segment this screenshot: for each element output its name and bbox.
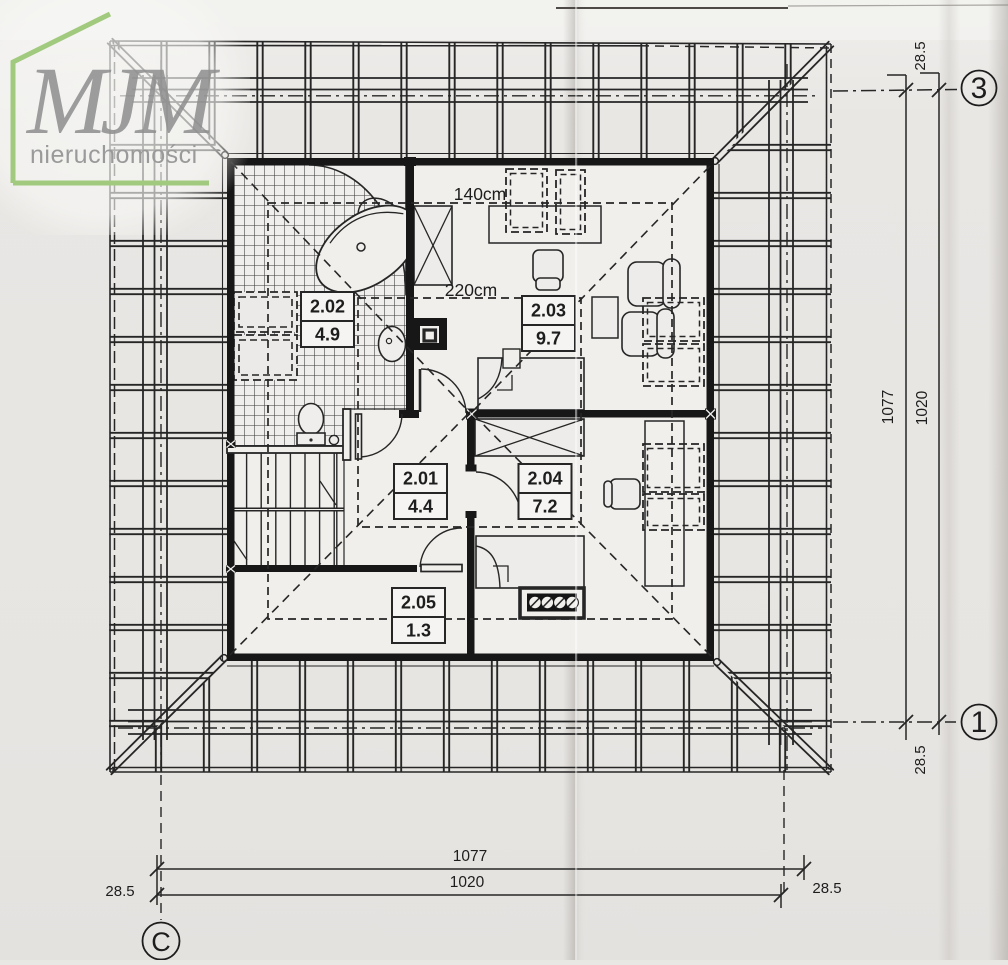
svg-text:9.7: 9.7: [536, 329, 561, 349]
svg-text:4.9: 4.9: [315, 325, 340, 345]
svg-text:7.2: 7.2: [532, 497, 557, 517]
svg-text:1077: 1077: [880, 390, 897, 424]
svg-text:1: 1: [971, 706, 988, 739]
svg-text:2.02: 2.02: [310, 297, 345, 317]
svg-text:28.5: 28.5: [812, 880, 841, 897]
svg-text:140cm: 140cm: [454, 184, 507, 204]
svg-text:MJM: MJM: [25, 47, 221, 154]
svg-text:1020: 1020: [914, 390, 931, 425]
svg-text:1077: 1077: [453, 848, 487, 865]
svg-text:2.05: 2.05: [401, 593, 436, 613]
svg-text:2.01: 2.01: [403, 469, 438, 489]
svg-text:28.5: 28.5: [912, 41, 929, 70]
svg-text:C: C: [151, 927, 171, 957]
svg-text:1.3: 1.3: [406, 621, 431, 641]
svg-text:3: 3: [971, 72, 988, 105]
svg-text:220cm: 220cm: [445, 280, 498, 300]
svg-text:1020: 1020: [450, 874, 485, 891]
svg-text:28.5: 28.5: [912, 745, 929, 774]
svg-text:4.4: 4.4: [408, 497, 433, 517]
svg-text:nieruchomości: nieruchomości: [30, 141, 198, 169]
svg-text:2.04: 2.04: [527, 469, 562, 489]
svg-text:28.5: 28.5: [105, 883, 134, 900]
svg-text:2.03: 2.03: [531, 301, 566, 321]
